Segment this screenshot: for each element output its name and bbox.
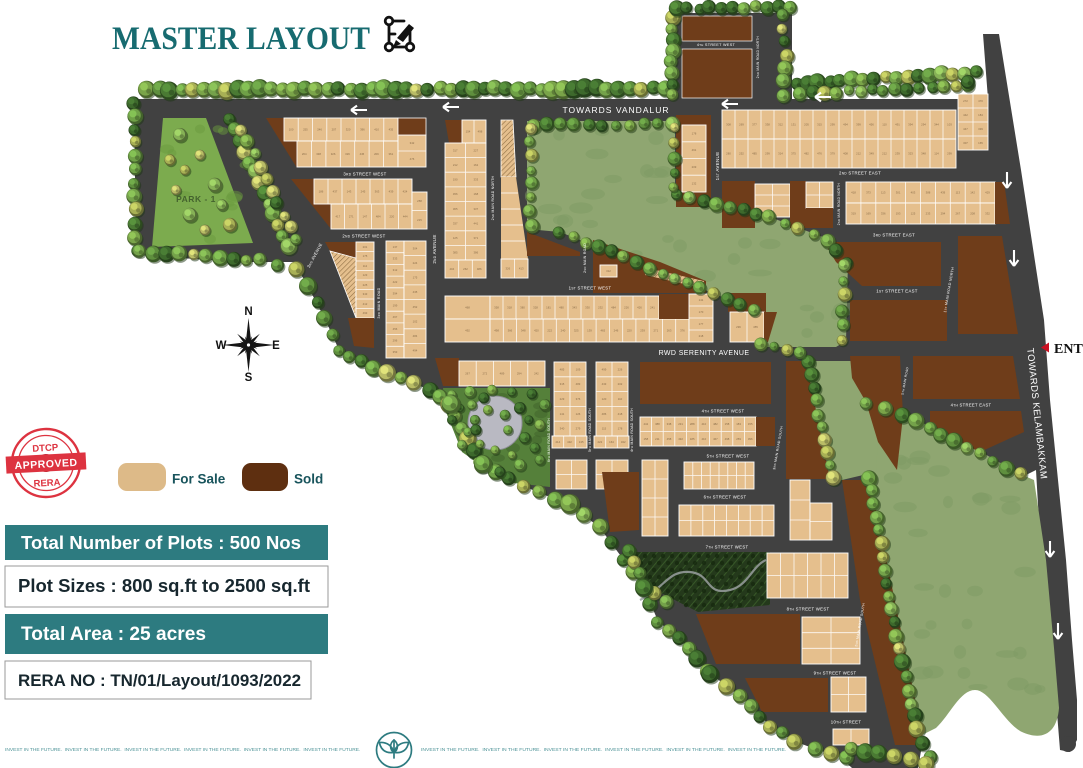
svg-text:338: 338: [316, 152, 321, 156]
svg-text:442: 442: [963, 113, 968, 117]
svg-text:340: 340: [560, 427, 565, 431]
svg-text:465: 465: [600, 329, 605, 333]
svg-text:484: 484: [376, 215, 381, 219]
svg-text:100: 100: [289, 128, 294, 132]
svg-text:342: 342: [621, 440, 626, 444]
svg-text:240: 240: [561, 329, 566, 333]
svg-text:323: 323: [908, 152, 913, 156]
svg-text:343: 343: [363, 292, 368, 296]
svg-text:185: 185: [690, 437, 695, 441]
svg-text:MASTER LAYOUT: MASTER LAYOUT: [112, 21, 370, 57]
svg-text:493: 493: [363, 311, 368, 315]
svg-text:Total Number of Plots : 500 No: Total Number of Plots : 500 Nos: [21, 532, 301, 553]
svg-text:482: 482: [713, 422, 718, 426]
svg-text:239: 239: [640, 329, 645, 333]
svg-text:164: 164: [609, 440, 614, 444]
svg-text:315: 315: [817, 123, 822, 127]
svg-text:3RD STREET WEST: 3RD STREET WEST: [343, 172, 386, 177]
svg-text:330: 330: [585, 306, 590, 310]
svg-text:396: 396: [360, 128, 365, 132]
svg-text:165: 165: [978, 141, 983, 145]
svg-text:158: 158: [643, 437, 648, 441]
svg-text:413: 413: [519, 267, 524, 271]
svg-text:485: 485: [752, 152, 757, 156]
svg-text:114: 114: [934, 152, 939, 156]
svg-text:267: 267: [955, 212, 960, 216]
svg-text:486: 486: [602, 412, 607, 416]
svg-text:353: 353: [393, 350, 398, 354]
svg-text:386: 386: [473, 251, 478, 255]
svg-text:299: 299: [947, 152, 952, 156]
svg-text:328: 328: [533, 306, 538, 310]
svg-text:139: 139: [587, 329, 592, 333]
svg-text:181: 181: [546, 306, 551, 310]
svg-text:467: 467: [713, 437, 718, 441]
svg-text:412: 412: [363, 302, 368, 306]
svg-text:304: 304: [413, 246, 418, 250]
svg-text:178: 178: [692, 131, 697, 135]
svg-text:1ST STREET WEST: 1ST STREET WEST: [569, 286, 612, 291]
svg-text:410: 410: [701, 437, 706, 441]
svg-text:RERA: RERA: [33, 477, 61, 489]
svg-text:158: 158: [725, 422, 730, 426]
svg-text:2ND MAIN ROAD NORTH: 2ND MAIN ROAD NORTH: [491, 176, 495, 221]
svg-text:492: 492: [678, 437, 683, 441]
svg-text:456: 456: [453, 192, 458, 196]
svg-text:205: 205: [804, 123, 809, 127]
svg-text:For Sale: For Sale: [172, 472, 226, 487]
svg-text:2ND MAIN ROAD: 2ND MAIN ROAD: [583, 243, 587, 273]
svg-text:2ND STREET WEST: 2ND STREET WEST: [342, 234, 385, 239]
svg-text:375: 375: [791, 152, 796, 156]
svg-text:Total Area : 25 acres: Total Area : 25 acres: [21, 624, 206, 645]
svg-text:4TH MAIN ROAD SOUTH: 4TH MAIN ROAD SOUTH: [630, 408, 634, 452]
svg-text:426: 426: [637, 306, 642, 310]
svg-text:418: 418: [851, 191, 856, 195]
svg-text:476: 476: [410, 157, 415, 161]
svg-text:271: 271: [349, 215, 354, 219]
svg-text:202: 202: [618, 382, 623, 386]
svg-text:175: 175: [413, 276, 418, 280]
svg-text:458: 458: [667, 437, 672, 441]
svg-text:199: 199: [393, 303, 398, 307]
svg-text:209: 209: [374, 152, 379, 156]
svg-text:10TH STREET: 10TH STREET: [831, 720, 862, 725]
svg-text:125: 125: [453, 236, 458, 240]
svg-text:135: 135: [579, 440, 584, 444]
svg-text:491: 491: [895, 123, 900, 127]
svg-text:4TH STREET EAST: 4TH STREET EAST: [951, 403, 992, 408]
svg-text:326: 326: [345, 152, 350, 156]
svg-text:312: 312: [606, 269, 611, 273]
svg-text:484: 484: [611, 306, 616, 310]
svg-text:435: 435: [389, 128, 394, 132]
svg-text:125: 125: [911, 212, 916, 216]
svg-text:4TH STREET WEST: 4TH STREET WEST: [697, 43, 736, 47]
svg-text:439: 439: [389, 190, 394, 194]
svg-text:482: 482: [804, 152, 809, 156]
svg-text:222: 222: [547, 329, 552, 333]
svg-text:183: 183: [736, 422, 741, 426]
svg-text:461: 461: [692, 148, 697, 152]
svg-text:242: 242: [534, 372, 539, 376]
svg-text:417: 417: [335, 215, 340, 219]
svg-text:262: 262: [463, 267, 468, 271]
svg-text:447: 447: [963, 127, 968, 131]
svg-text:348: 348: [521, 329, 526, 333]
svg-text:337: 337: [453, 221, 458, 225]
svg-text:422: 422: [393, 280, 398, 284]
svg-text:399: 399: [856, 123, 861, 127]
svg-text:344: 344: [934, 123, 939, 127]
svg-text:ENT: ENT: [1054, 342, 1083, 357]
svg-text:433: 433: [602, 382, 607, 386]
svg-text:4TH STREET WEST: 4TH STREET WEST: [702, 409, 745, 414]
svg-text:245: 245: [361, 190, 366, 194]
svg-text:418: 418: [618, 412, 623, 416]
svg-text:255: 255: [303, 128, 308, 132]
svg-text:403: 403: [911, 191, 916, 195]
svg-text:420: 420: [534, 329, 539, 333]
svg-text:444: 444: [403, 215, 408, 219]
svg-text:371: 371: [473, 236, 478, 240]
svg-text:225: 225: [363, 283, 368, 287]
svg-text:456: 456: [869, 123, 874, 127]
svg-text:141: 141: [560, 412, 565, 416]
svg-text:110: 110: [618, 397, 623, 401]
svg-text:212: 212: [453, 163, 458, 167]
svg-text:408: 408: [843, 152, 848, 156]
svg-text:S: S: [245, 372, 253, 384]
svg-text:252: 252: [739, 152, 744, 156]
svg-text:5TH MAIN ROAD SOUTH: 5TH MAIN ROAD SOUTH: [588, 408, 592, 452]
svg-text:155: 155: [748, 422, 753, 426]
svg-text:379: 379: [830, 152, 835, 156]
svg-text:147: 147: [362, 215, 367, 219]
svg-text:269: 269: [739, 123, 744, 127]
svg-text:154: 154: [466, 130, 471, 134]
svg-text:264: 264: [302, 152, 307, 156]
svg-text:120: 120: [602, 397, 607, 401]
svg-text:218: 218: [699, 334, 704, 338]
svg-text:280: 280: [726, 152, 731, 156]
svg-text:6TH STREET WEST: 6TH STREET WEST: [704, 495, 747, 500]
svg-text:373: 373: [866, 191, 871, 195]
svg-text:455: 455: [753, 325, 758, 329]
svg-text:294: 294: [941, 212, 946, 216]
svg-text:388: 388: [926, 191, 931, 195]
svg-text:112: 112: [363, 264, 368, 268]
svg-text:483: 483: [576, 382, 581, 386]
svg-text:301: 301: [896, 191, 901, 195]
svg-text:470: 470: [978, 99, 983, 103]
svg-text:212: 212: [856, 152, 861, 156]
svg-text:168: 168: [473, 192, 478, 196]
svg-text:Sold: Sold: [294, 472, 323, 487]
svg-text:186: 186: [319, 190, 324, 194]
svg-text:1ST STREET EAST: 1ST STREET EAST: [876, 289, 918, 294]
svg-text:226: 226: [618, 367, 623, 371]
svg-text:2ND MAIN ROAD NORTH: 2ND MAIN ROAD NORTH: [837, 182, 841, 225]
svg-text:342: 342: [410, 141, 415, 145]
svg-text:6TH MAIN ROAD SOUTH: 6TH MAIN ROAD SOUTH: [547, 418, 551, 462]
svg-text:103: 103: [947, 123, 952, 127]
svg-text:452: 452: [413, 305, 418, 309]
svg-text:170: 170: [699, 310, 704, 314]
svg-text:220: 220: [627, 329, 632, 333]
svg-text:336: 336: [881, 212, 886, 216]
svg-text:E: E: [272, 340, 280, 352]
svg-text:333: 333: [393, 257, 398, 261]
svg-text:272: 272: [963, 99, 968, 103]
svg-text:332: 332: [985, 212, 990, 216]
svg-text:494: 494: [843, 123, 848, 127]
svg-text:320: 320: [346, 128, 351, 132]
svg-text:212: 212: [882, 152, 887, 156]
svg-text:489: 489: [500, 372, 505, 376]
svg-text:388: 388: [655, 422, 660, 426]
svg-text:INVEST IN THE FUTURE. INVEST: INVEST IN THE FUTURE. INVEST IN THE FUTU…: [5, 747, 363, 752]
svg-text:376: 376: [576, 397, 581, 401]
svg-text:3RD STREET EAST: 3RD STREET EAST: [873, 233, 915, 238]
svg-text:INVEST IN THE FUTURE. INVEST: INVEST IN THE FUTURE. INVEST IN THE FUTU…: [421, 747, 789, 752]
svg-text:456: 456: [393, 327, 398, 331]
svg-text:208: 208: [970, 212, 975, 216]
svg-text:312: 312: [778, 123, 783, 127]
svg-text:1ST AVENUE: 1ST AVENUE: [715, 152, 720, 181]
svg-text:439: 439: [941, 191, 946, 195]
svg-text:175: 175: [363, 254, 368, 258]
svg-text:385: 385: [453, 251, 458, 255]
svg-text:337: 337: [473, 207, 478, 211]
svg-text:314: 314: [778, 152, 783, 156]
svg-text:476: 476: [817, 152, 822, 156]
svg-text:366: 366: [508, 329, 513, 333]
svg-text:132: 132: [692, 182, 697, 186]
svg-text:239: 239: [895, 152, 900, 156]
svg-text:432: 432: [567, 440, 572, 444]
svg-text:102: 102: [413, 319, 418, 323]
svg-text:220: 220: [389, 215, 394, 219]
svg-text:3RD MAIN ROAD: 3RD MAIN ROAD: [377, 287, 381, 318]
svg-text:207: 207: [332, 128, 337, 132]
svg-text:113: 113: [956, 191, 961, 195]
svg-text:141: 141: [699, 298, 704, 302]
svg-text:233: 233: [926, 212, 931, 216]
svg-text:115: 115: [602, 427, 607, 431]
svg-text:499: 499: [602, 367, 607, 371]
svg-text:8TH STREET WEST: 8TH STREET WEST: [787, 607, 830, 612]
svg-text:299: 299: [765, 152, 770, 156]
svg-text:377: 377: [752, 123, 757, 127]
svg-text:480: 480: [559, 306, 564, 310]
svg-text:241: 241: [650, 306, 655, 310]
svg-text:299: 299: [830, 123, 835, 127]
svg-text:288: 288: [690, 422, 695, 426]
svg-text:232: 232: [598, 306, 603, 310]
svg-text:PARK - 1: PARK - 1: [176, 194, 216, 204]
svg-text:193: 193: [896, 212, 901, 216]
svg-text:410: 410: [701, 422, 706, 426]
svg-text:445: 445: [360, 152, 365, 156]
svg-text:226: 226: [624, 306, 629, 310]
svg-text:178: 178: [618, 427, 623, 431]
svg-text:486: 486: [477, 267, 482, 271]
svg-text:410: 410: [374, 128, 379, 132]
svg-text:437: 437: [333, 190, 338, 194]
svg-text:143: 143: [347, 190, 352, 194]
svg-text:498: 498: [725, 437, 730, 441]
svg-text:467: 467: [393, 315, 398, 319]
svg-text:343: 343: [572, 306, 577, 310]
svg-text:339: 339: [978, 127, 983, 131]
svg-text:229: 229: [560, 397, 565, 401]
svg-text:494: 494: [413, 349, 418, 353]
svg-text:376: 376: [680, 329, 685, 333]
svg-text:169: 169: [866, 212, 871, 216]
svg-text:Plot Sizes : 800 sq.ft to 2500: Plot Sizes : 800 sq.ft to 2500 sq.ft: [18, 575, 310, 596]
svg-text:142: 142: [970, 191, 975, 195]
svg-text:231: 231: [678, 422, 683, 426]
svg-text:380: 380: [520, 306, 525, 310]
svg-text:468: 468: [465, 306, 470, 310]
svg-text:307: 307: [963, 141, 968, 145]
svg-text:123: 123: [363, 273, 368, 277]
svg-text:294: 294: [921, 123, 926, 127]
svg-text:424: 424: [403, 190, 408, 194]
svg-text:201: 201: [363, 245, 368, 249]
svg-text:326: 326: [331, 152, 336, 156]
svg-text:294: 294: [517, 372, 522, 376]
svg-text:333: 333: [473, 178, 478, 182]
svg-text:2ND STREET EAST: 2ND STREET EAST: [839, 171, 881, 176]
svg-text:131: 131: [791, 123, 796, 127]
svg-text:492: 492: [465, 329, 470, 333]
svg-text:317: 317: [453, 148, 458, 152]
svg-text:396: 396: [748, 437, 753, 441]
svg-text:246: 246: [614, 329, 619, 333]
svg-text:W: W: [216, 340, 227, 352]
svg-text:2ND MAIN ROAD NORTH: 2ND MAIN ROAD NORTH: [756, 35, 760, 78]
svg-text:325: 325: [574, 329, 579, 333]
svg-text:498: 498: [494, 329, 499, 333]
svg-text:9TH STREET WEST: 9TH STREET WEST: [814, 671, 857, 676]
svg-text:RWD SERENITY AVENUE: RWD SERENITY AVENUE: [659, 350, 750, 357]
svg-text:110: 110: [882, 123, 887, 127]
svg-text:2ND AVENUE: 2ND AVENUE: [432, 234, 437, 263]
svg-text:224: 224: [413, 261, 418, 265]
svg-text:394: 394: [908, 123, 913, 127]
svg-text:TOWARDS VANDALUR: TOWARDS VANDALUR: [563, 105, 670, 115]
svg-text:319: 319: [851, 212, 856, 216]
svg-text:271: 271: [653, 329, 658, 333]
svg-text:441: 441: [473, 221, 478, 225]
svg-text:315: 315: [560, 382, 565, 386]
svg-text:109: 109: [576, 367, 581, 371]
svg-text:296: 296: [393, 338, 398, 342]
svg-text:RERA NO : TN/01/Layout/1093/20: RERA NO : TN/01/Layout/1093/2022: [18, 671, 301, 690]
svg-text:348: 348: [921, 152, 926, 156]
svg-text:338: 338: [667, 422, 672, 426]
svg-text:442: 442: [643, 422, 648, 426]
svg-text:358: 358: [494, 306, 499, 310]
svg-text:5TH STREET WEST: 5TH STREET WEST: [707, 454, 750, 459]
svg-text:394: 394: [393, 292, 398, 296]
svg-text:267: 267: [465, 372, 470, 376]
svg-text:184: 184: [978, 113, 983, 117]
svg-text:498: 498: [478, 130, 483, 134]
svg-text:484: 484: [413, 334, 418, 338]
svg-text:214: 214: [555, 440, 560, 444]
svg-text:137: 137: [393, 245, 398, 249]
svg-text:349: 349: [869, 152, 874, 156]
svg-text:272: 272: [482, 372, 487, 376]
svg-text:308: 308: [726, 123, 731, 127]
svg-text:326: 326: [505, 267, 510, 271]
svg-text:227: 227: [473, 148, 478, 152]
svg-text:190: 190: [453, 178, 458, 182]
svg-text:485: 485: [560, 367, 565, 371]
svg-text:258: 258: [417, 199, 422, 203]
svg-text:296: 296: [736, 325, 741, 329]
svg-text:113: 113: [881, 191, 886, 195]
svg-text:222: 222: [597, 440, 602, 444]
svg-text:259: 259: [736, 437, 741, 441]
svg-text:312: 312: [393, 268, 398, 272]
svg-text:365: 365: [453, 207, 458, 211]
svg-text:404: 404: [449, 267, 454, 271]
svg-text:7TH STREET WEST: 7TH STREET WEST: [706, 545, 749, 550]
svg-text:429: 429: [985, 191, 990, 195]
svg-text:363: 363: [375, 190, 380, 194]
svg-text:N: N: [244, 306, 252, 318]
svg-text:209: 209: [692, 165, 697, 169]
svg-text:162: 162: [473, 163, 478, 167]
svg-text:318: 318: [507, 306, 512, 310]
svg-text:211: 211: [655, 437, 660, 441]
svg-text:361: 361: [388, 152, 393, 156]
svg-text:DTCP: DTCP: [32, 442, 59, 454]
svg-text:263: 263: [667, 329, 672, 333]
svg-text:215: 215: [417, 218, 422, 222]
svg-text:435: 435: [413, 290, 418, 294]
svg-text:126: 126: [576, 412, 581, 416]
svg-text:338: 338: [765, 123, 770, 127]
svg-text:177: 177: [699, 322, 704, 326]
svg-text:246: 246: [317, 128, 322, 132]
svg-text:279: 279: [576, 427, 581, 431]
